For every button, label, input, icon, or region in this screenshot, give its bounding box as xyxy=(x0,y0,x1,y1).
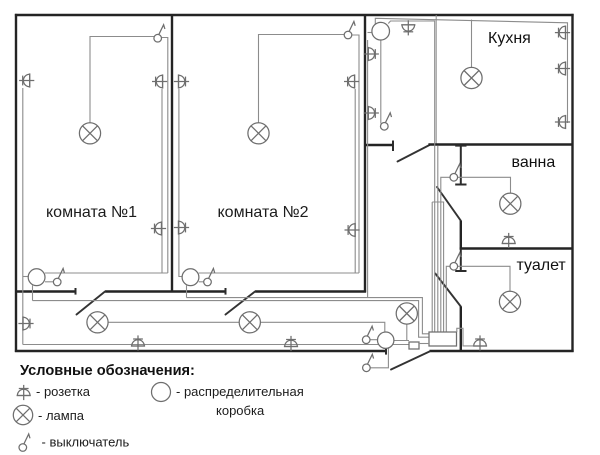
svg-text:комната №1: комната №1 xyxy=(46,204,137,221)
svg-text:- розетка: - розетка xyxy=(36,384,91,399)
svg-text:- лампа: - лампа xyxy=(38,408,85,423)
svg-text:ванна: ванна xyxy=(512,154,556,171)
svg-text:- распределительная: - распределительная xyxy=(176,384,304,399)
svg-text:комната №2: комната №2 xyxy=(218,204,309,221)
svg-text:коробка: коробка xyxy=(216,403,265,418)
svg-text:- выключатель: - выключатель xyxy=(42,435,130,450)
svg-text:туалет: туалет xyxy=(517,257,567,274)
svg-text:Кухня: Кухня xyxy=(488,30,531,47)
svg-text:Условные обозначения:: Условные обозначения: xyxy=(20,363,195,379)
